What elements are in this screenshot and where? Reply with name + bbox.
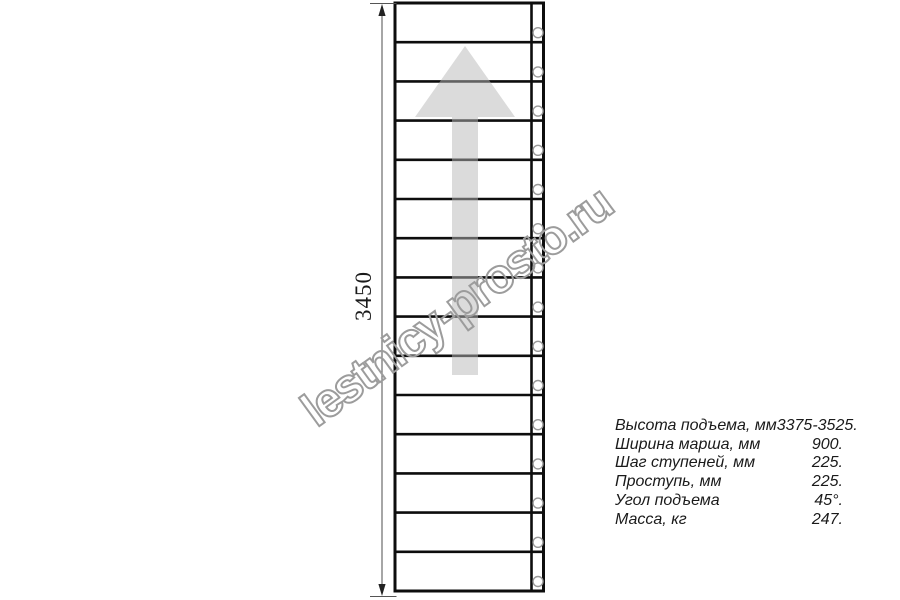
fastener-circle (533, 224, 543, 234)
spec-label: Шаг ступеней, мм (615, 454, 755, 473)
spec-value: 247. (812, 511, 843, 530)
dimension-arrowhead-down (378, 584, 385, 596)
up-direction-arrow (415, 46, 515, 375)
spec-row: Угол подъема 45°. (615, 492, 843, 511)
fastener-circle (533, 341, 543, 351)
fastener-circle (533, 302, 543, 312)
spec-value: 45°. (814, 492, 843, 511)
spec-row: Проступь, мм 225. (615, 473, 843, 492)
fastener-circle (533, 106, 543, 116)
spec-label: Высота подъема, мм (615, 417, 777, 436)
fastener-circle (533, 145, 543, 155)
fastener-circle (533, 185, 543, 195)
spec-label: Масса, кг (615, 511, 687, 530)
fastener-circle (533, 381, 543, 391)
fastener-circle (533, 537, 543, 547)
spec-row: Масса, кг 247. (615, 511, 843, 530)
fastener-circle (533, 263, 543, 273)
dimension-arrowhead-up (378, 4, 385, 16)
spec-label: Проступь, мм (615, 473, 721, 492)
fastener-circle (533, 459, 543, 469)
dimension-value: 3450 (351, 271, 377, 321)
fastener-circle (533, 28, 543, 38)
stair-drawing-page: 3450 Высота подъема, мм 3375-3525. Ширин… (0, 0, 900, 600)
spec-row: Ширина марша, мм 900. (615, 436, 843, 455)
spec-row: Высота подъема, мм 3375-3525. (615, 417, 843, 436)
spec-row: Шаг ступеней, мм 225. (615, 454, 843, 473)
fastener-circle (533, 420, 543, 430)
spec-value: 225. (812, 473, 843, 492)
fastener-circle (533, 577, 543, 587)
spec-label: Ширина марша, мм (615, 436, 760, 455)
spec-value: 900. (812, 436, 843, 455)
spec-value: 225. (812, 454, 843, 473)
fastener-circle (533, 498, 543, 508)
spec-table: Высота подъема, мм 3375-3525. Ширина мар… (615, 417, 843, 529)
fastener-circle (533, 67, 543, 77)
spec-label: Угол подъема (615, 492, 720, 511)
spec-value: 3375-3525. (777, 417, 858, 436)
